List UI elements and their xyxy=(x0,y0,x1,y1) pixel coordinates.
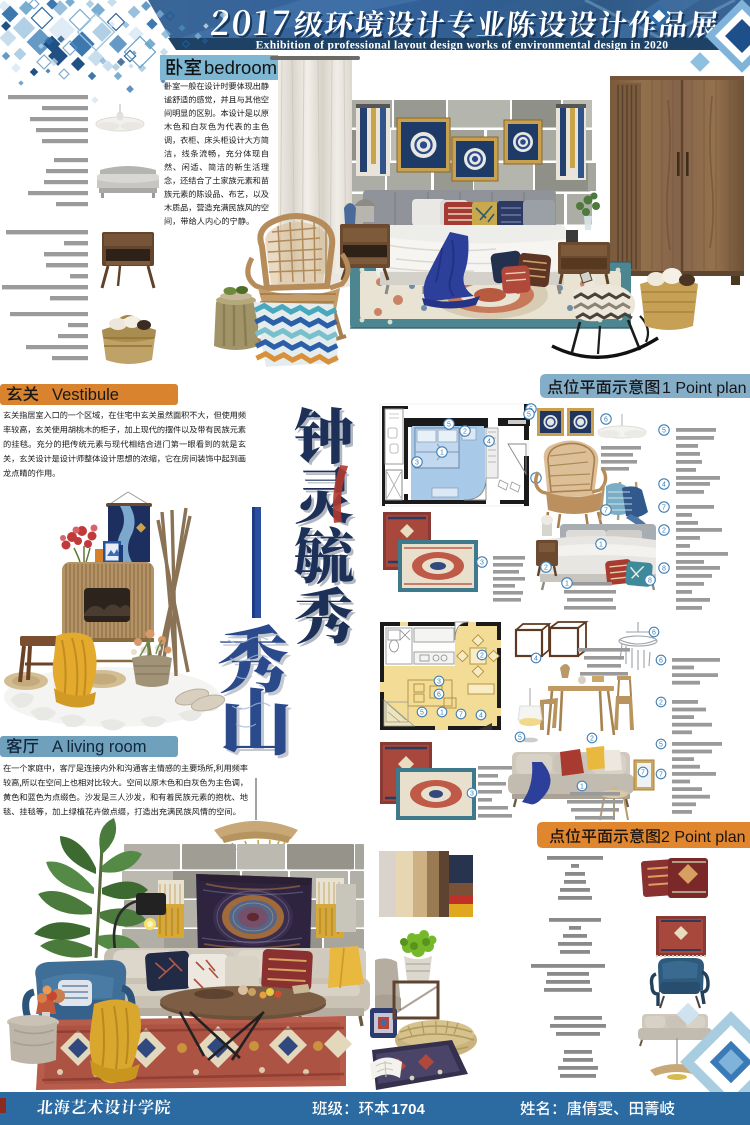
svg-text:Exhibition of professional lay: Exhibition of professional layout design… xyxy=(256,39,669,52)
svg-text:6: 6 xyxy=(604,417,608,424)
svg-text:7: 7 xyxy=(662,505,666,512)
svg-text:5: 5 xyxy=(518,735,522,742)
svg-text:4: 4 xyxy=(487,439,491,446)
svg-text:5: 5 xyxy=(420,710,424,717)
svg-text:5: 5 xyxy=(659,742,663,749)
svg-text:3: 3 xyxy=(480,560,484,567)
svg-text:2: 2 xyxy=(463,429,467,436)
svg-text:5: 5 xyxy=(527,412,531,419)
svg-text:2 Point plan: 2 Point plan xyxy=(661,829,746,846)
svg-text:8: 8 xyxy=(662,566,666,573)
svg-text:4: 4 xyxy=(479,713,483,720)
svg-text:6: 6 xyxy=(652,630,656,637)
svg-text:1: 1 xyxy=(440,450,444,457)
svg-text:2: 2 xyxy=(659,700,663,707)
svg-text:2: 2 xyxy=(480,653,484,660)
svg-text:3: 3 xyxy=(437,679,441,686)
svg-text:3: 3 xyxy=(470,791,474,798)
svg-text:1: 1 xyxy=(440,710,444,717)
svg-text:1 Point plan: 1 Point plan xyxy=(662,380,747,397)
svg-text:1: 1 xyxy=(599,542,603,549)
svg-text:A living room: A living room xyxy=(52,738,146,756)
svg-text:1704: 1704 xyxy=(392,1101,426,1118)
svg-text:2: 2 xyxy=(544,565,548,572)
svg-text:7: 7 xyxy=(459,712,463,719)
svg-text:1: 1 xyxy=(565,581,569,588)
svg-text:4: 4 xyxy=(662,482,666,489)
svg-text:4: 4 xyxy=(534,656,538,663)
svg-text:2: 2 xyxy=(662,528,666,535)
svg-text:5: 5 xyxy=(662,428,666,435)
svg-text:6: 6 xyxy=(437,692,441,699)
svg-text:6: 6 xyxy=(659,658,663,665)
svg-text:1: 1 xyxy=(580,784,584,791)
svg-text:bedroom: bedroom xyxy=(204,57,277,78)
svg-text:7: 7 xyxy=(604,508,608,515)
svg-text:Vestibule: Vestibule xyxy=(52,386,119,404)
svg-text:5: 5 xyxy=(447,422,451,429)
svg-text:2: 2 xyxy=(590,736,594,743)
svg-text:7: 7 xyxy=(641,770,645,777)
svg-text:7: 7 xyxy=(659,772,663,779)
svg-text:3: 3 xyxy=(415,460,419,467)
svg-text:8: 8 xyxy=(648,578,652,585)
